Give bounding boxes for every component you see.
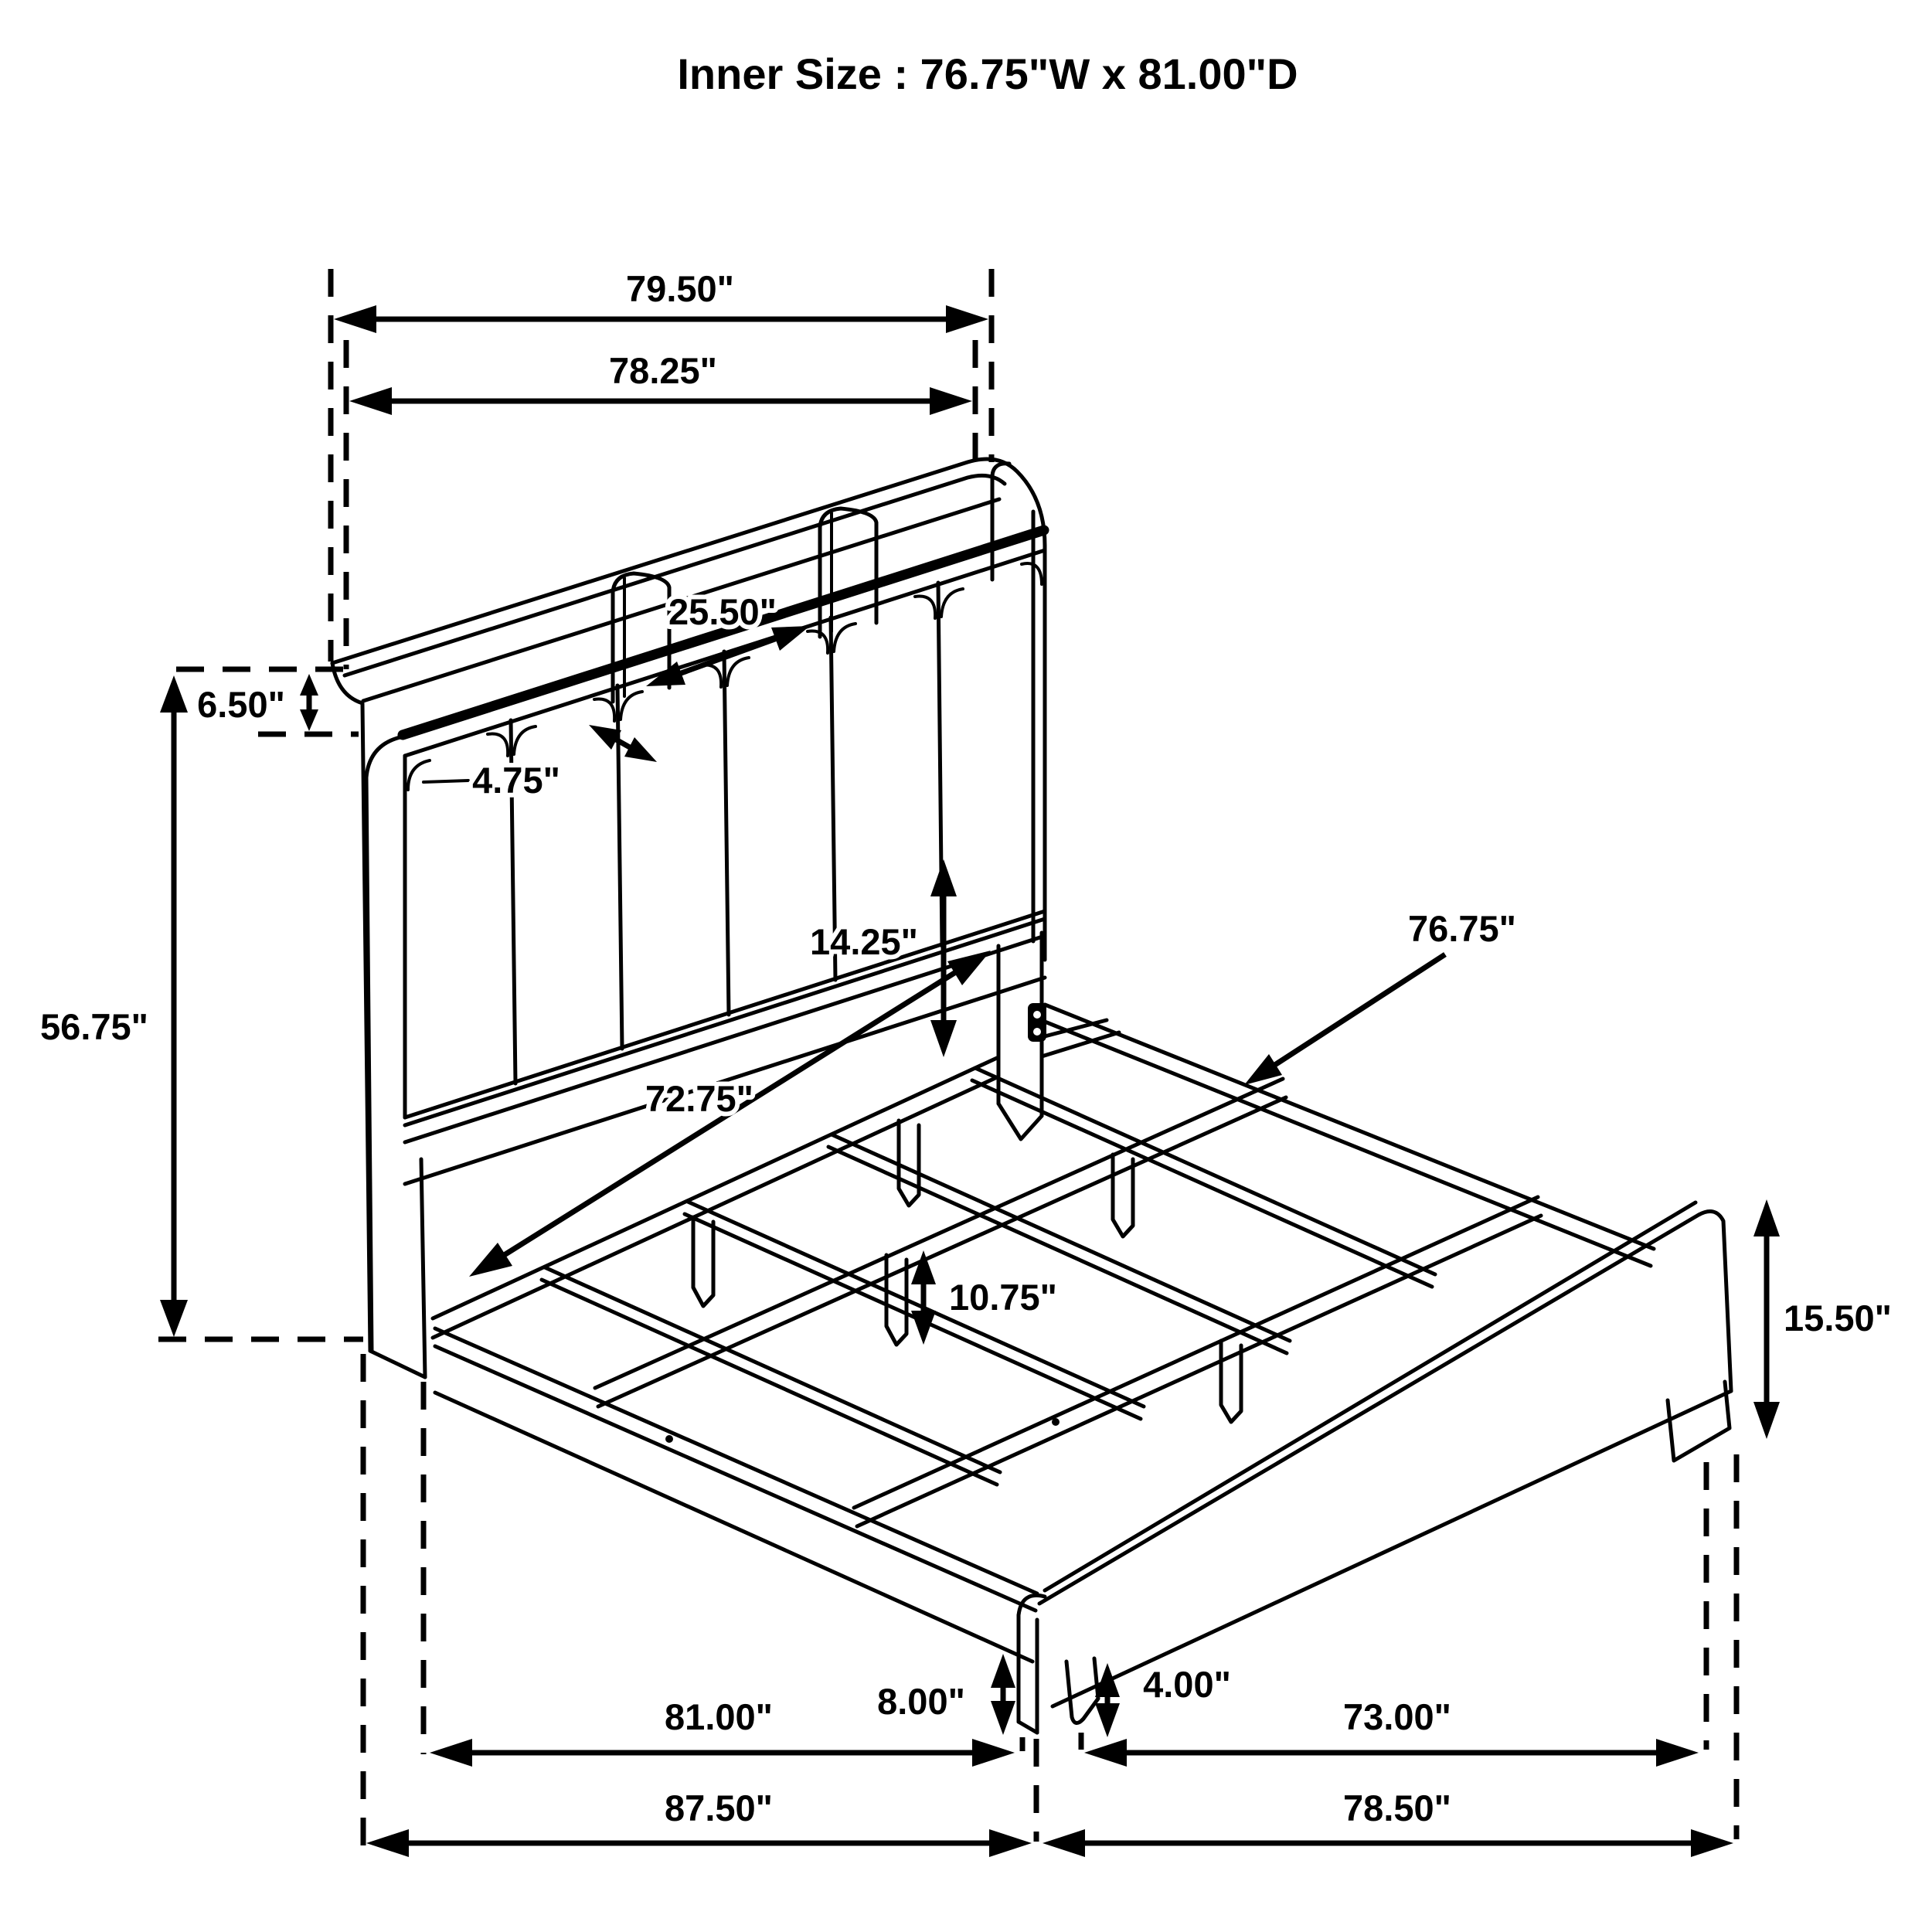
dim-label-frame-width: 78.25" <box>609 350 717 391</box>
dim-label-headboard-height: 56.75" <box>40 1006 148 1047</box>
dim-label-shelf-center-width: 25.50" <box>668 591 777 632</box>
dim-label-inner-rail-width: 72.75" <box>645 1078 753 1119</box>
dim-label-shelf-height: 6.50" <box>197 684 285 725</box>
dim-label-footboard-height: 15.50" <box>1784 1298 1892 1338</box>
dim-label-inner-depth: 81.00" <box>665 1696 773 1737</box>
dim-label-outer-width: 79.50" <box>626 268 734 309</box>
dim-label-shelf-depth: 4.75" <box>472 760 560 801</box>
dim-label-slat-length: 73.00" <box>1343 1696 1451 1737</box>
dim-label-leg-height: 4.00" <box>1143 1664 1231 1705</box>
dim-label-rail-floor-clearance: 8.00" <box>877 1681 965 1722</box>
dim-label-deck-clearance: 10.75" <box>949 1277 1057 1318</box>
diagram-page: 79.50" 78.25" 25.50" 4.75" 6.50" 56.75" <box>0 0 1932 1932</box>
dim-label-side-rail-length: 78.50" <box>1343 1787 1451 1828</box>
page-title: Inner Size : 76.75"W x 81.00"D <box>677 49 1298 98</box>
dim-label-rail-to-deck-height: 14.25" <box>810 921 918 962</box>
bed-dimension-diagram: 79.50" 78.25" 25.50" 4.75" 6.50" 56.75" <box>0 0 1932 1932</box>
dim-label-overall-depth: 87.50" <box>665 1787 773 1828</box>
dim-label-inner-width: 76.75" <box>1408 908 1516 949</box>
